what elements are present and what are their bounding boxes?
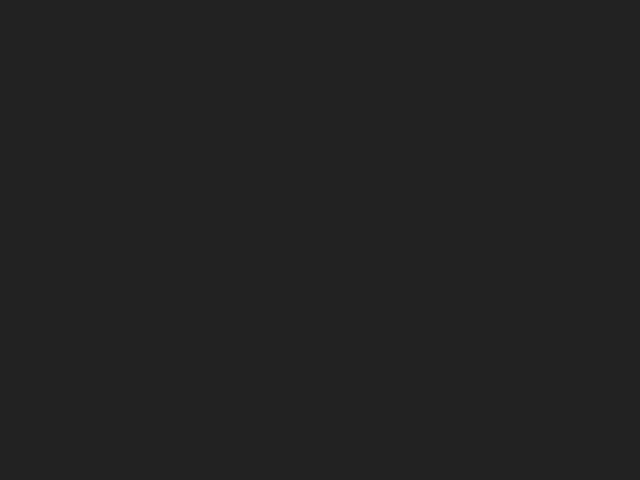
map-canvas [0,0,640,480]
satellite-map-view[interactable] [0,0,640,480]
